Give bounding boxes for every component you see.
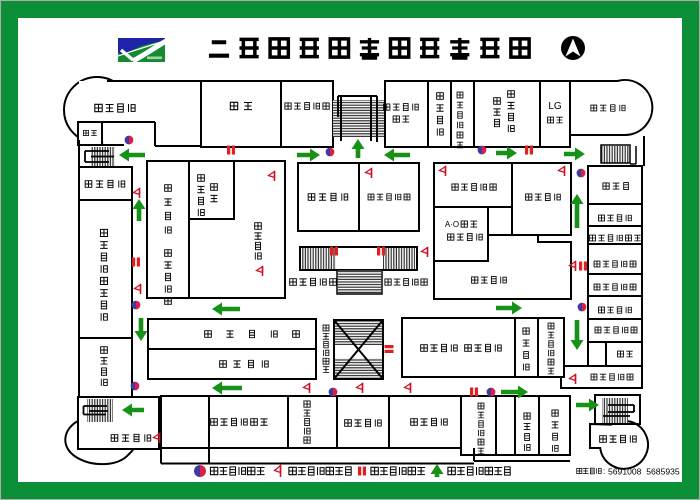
svg-text:LG: LG xyxy=(548,101,562,112)
svg-text:A·O: A·O xyxy=(445,220,459,229)
svg-text::: : xyxy=(603,467,605,476)
svg-text:5691008 5685935: 5691008 5685935 xyxy=(608,467,680,477)
